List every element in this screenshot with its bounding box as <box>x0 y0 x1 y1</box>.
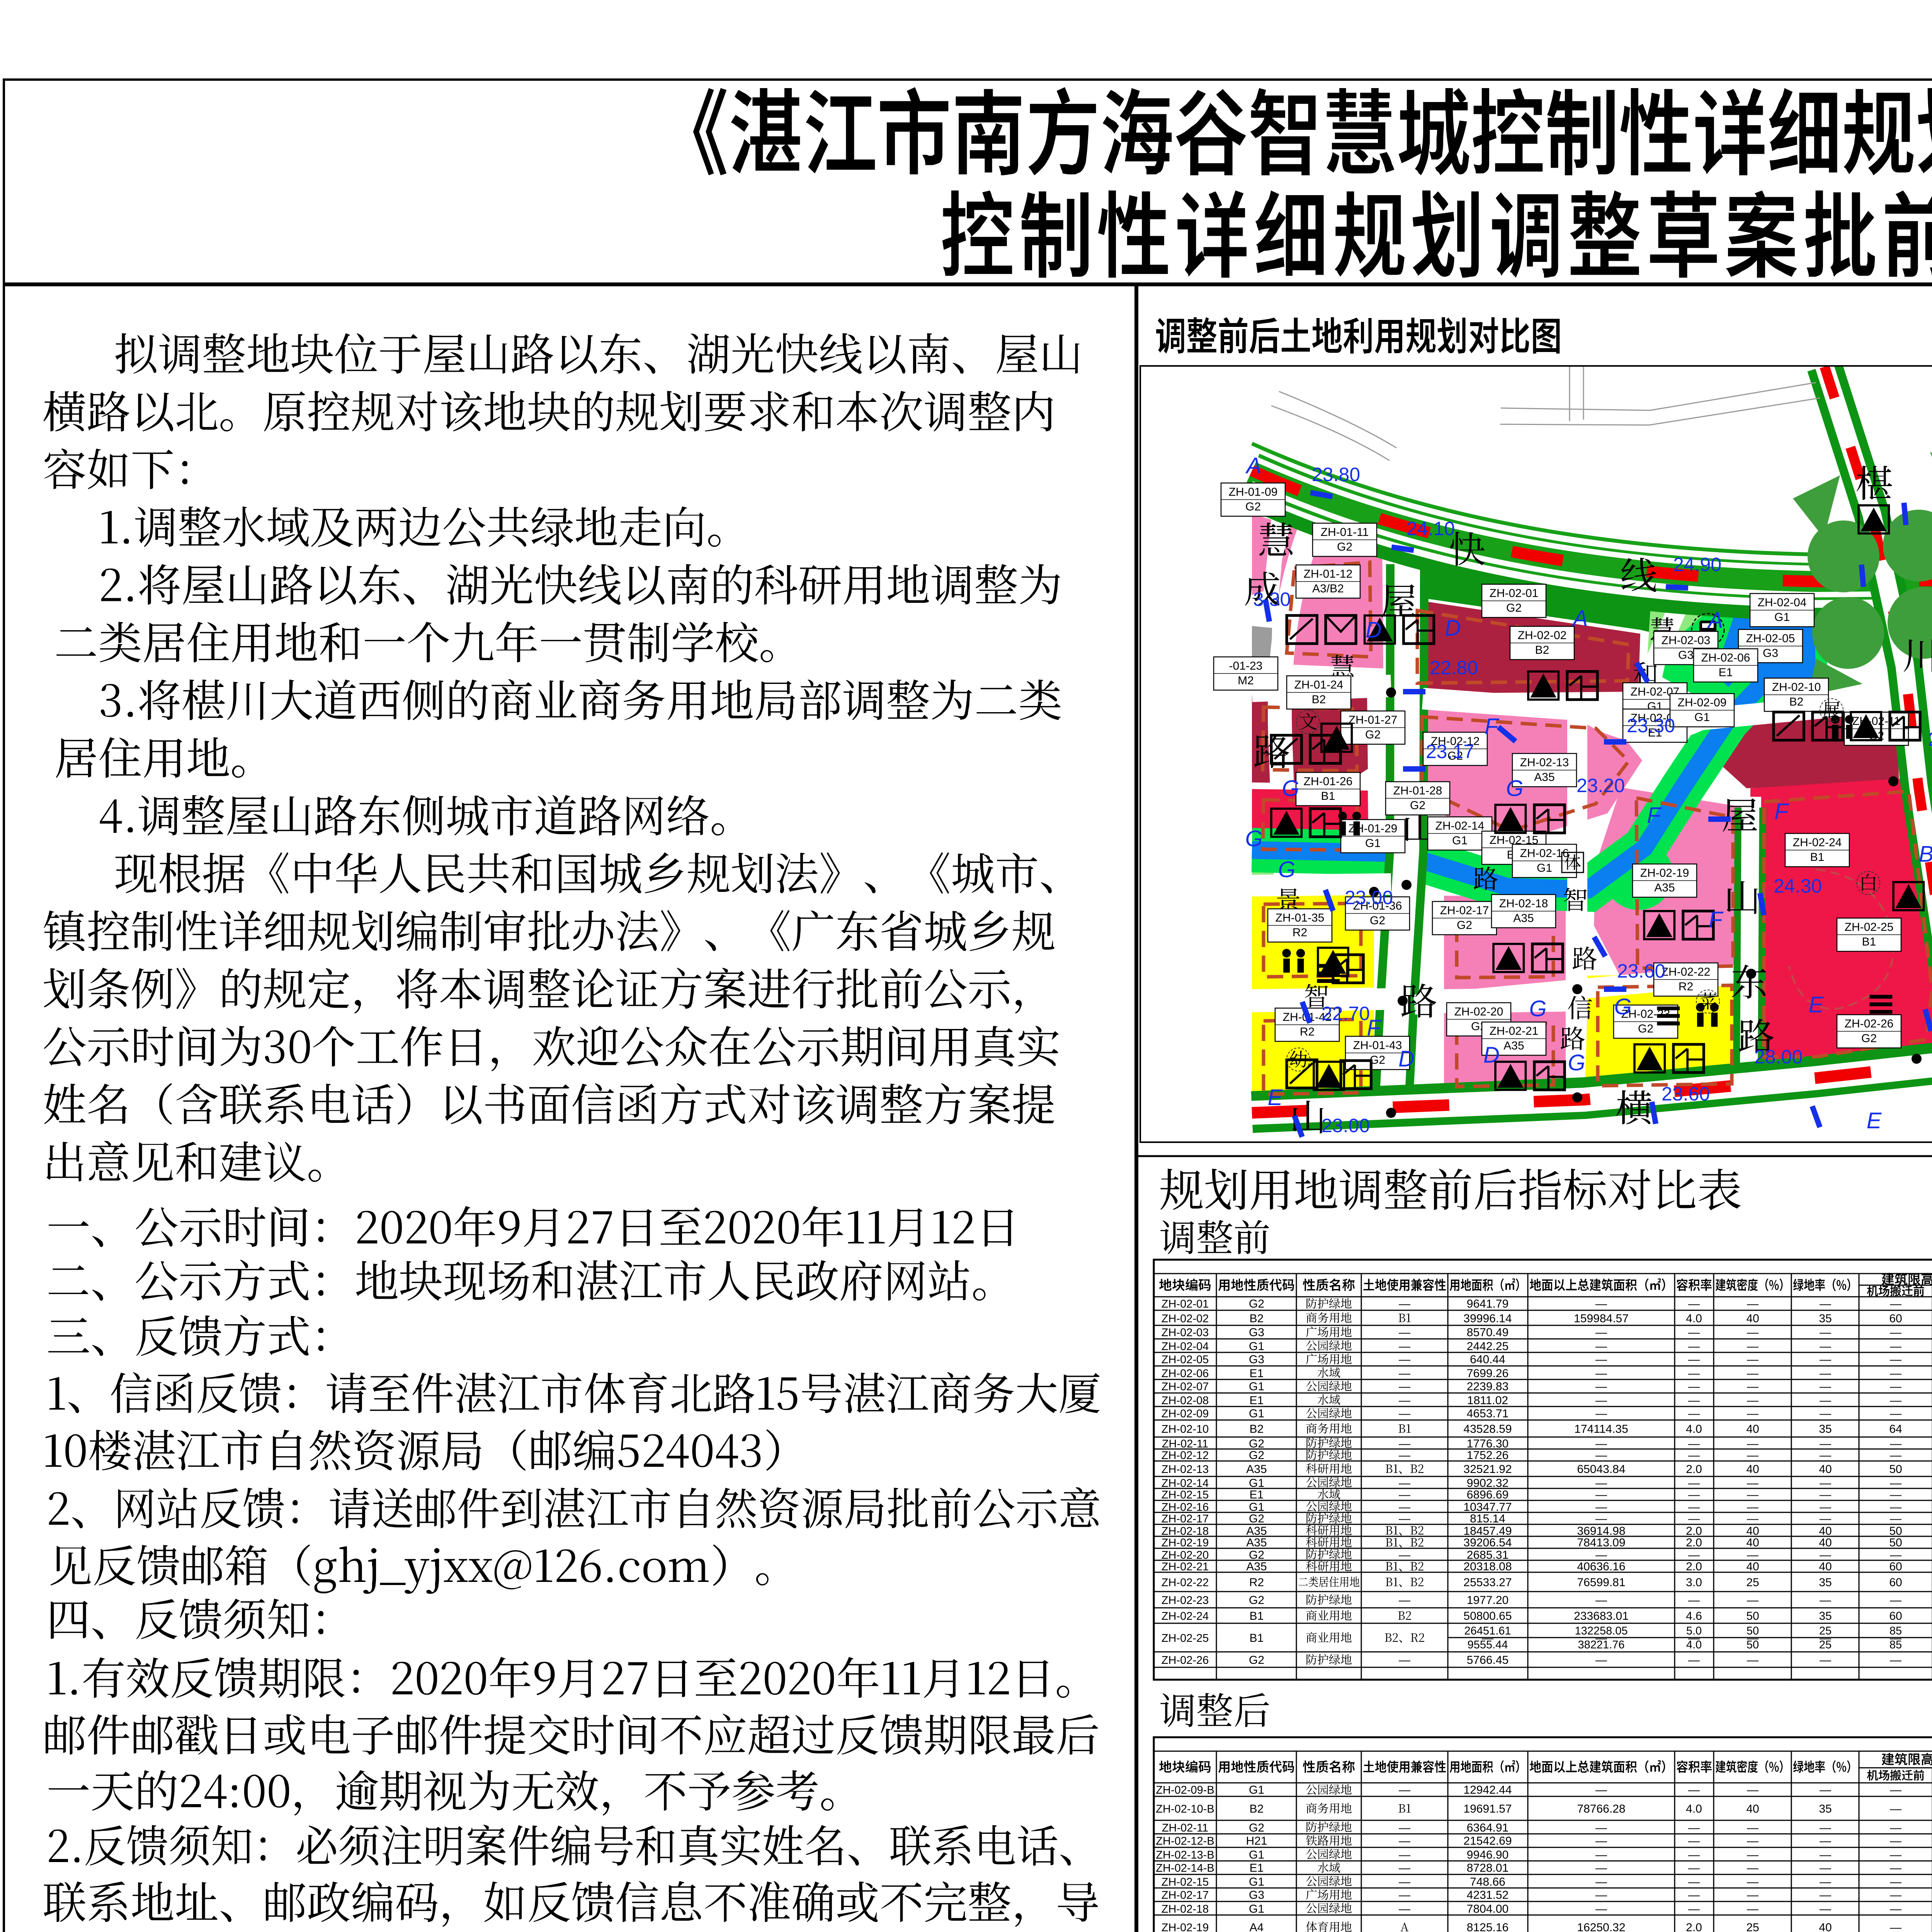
svg-text:ZH-02-17: ZH-02-17 <box>1162 1889 1209 1901</box>
svg-text:4231.52: 4231.52 <box>1467 1889 1509 1901</box>
svg-text:ZH-02-09-B: ZH-02-09-B <box>1156 1784 1214 1796</box>
svg-text:—: — <box>1747 1380 1759 1393</box>
svg-text:4.0: 4.0 <box>1686 1639 1702 1651</box>
svg-text:G: G <box>1278 857 1295 882</box>
svg-text:—: — <box>1595 1849 1607 1861</box>
svg-text:—: — <box>1688 1380 1700 1393</box>
svg-text:—: — <box>1890 1821 1901 1834</box>
svg-text:—: — <box>1399 1437 1410 1450</box>
svg-text:—: — <box>1688 1326 1700 1339</box>
svg-text:2685.31: 2685.31 <box>1467 1549 1509 1561</box>
svg-text:G3: G3 <box>1249 1889 1264 1901</box>
svg-text:23.17: 23.17 <box>1426 741 1474 762</box>
svg-text:21542.69: 21542.69 <box>1463 1835 1512 1847</box>
svg-text:—: — <box>1820 1512 1831 1525</box>
svg-text:G2: G2 <box>1249 1821 1264 1834</box>
svg-text:—: — <box>1595 1835 1607 1847</box>
svg-text:35: 35 <box>1819 1576 1832 1589</box>
svg-text:—: — <box>1688 1367 1700 1380</box>
svg-text:—: — <box>1820 1784 1831 1796</box>
svg-text:—: — <box>1688 1784 1700 1796</box>
svg-text:—: — <box>1688 1298 1700 1310</box>
svg-text:—: — <box>1890 1849 1901 1861</box>
svg-text:—: — <box>1890 1340 1901 1353</box>
svg-text:23.00: 23.00 <box>1345 887 1393 908</box>
svg-text:A35: A35 <box>1246 1560 1267 1573</box>
svg-text:ZH-02-03: ZH-02-03 <box>1662 634 1711 647</box>
svg-text:—: — <box>1688 1594 1700 1607</box>
svg-text:—: — <box>1595 1326 1607 1339</box>
svg-text:ZH-02-15: ZH-02-15 <box>1162 1489 1209 1501</box>
svg-text:—: — <box>1747 1876 1759 1888</box>
svg-text:7699.26: 7699.26 <box>1467 1367 1509 1380</box>
svg-text:39206.54: 39206.54 <box>1463 1536 1512 1549</box>
svg-text:24.30: 24.30 <box>1774 875 1822 897</box>
svg-text:38221.76: 38221.76 <box>1578 1639 1625 1651</box>
svg-text:B: B <box>1919 842 1932 867</box>
svg-text:40: 40 <box>1746 1312 1759 1325</box>
svg-text:ZH-02-22: ZH-02-22 <box>1662 966 1711 978</box>
svg-text:—: — <box>1399 1821 1410 1834</box>
svg-text:—: — <box>1595 1394 1607 1407</box>
svg-text:R2: R2 <box>1300 1026 1315 1038</box>
svg-text:65043.84: 65043.84 <box>1577 1463 1625 1476</box>
svg-text:—: — <box>1890 1654 1901 1667</box>
svg-text:ZH-02-03: ZH-02-03 <box>1162 1327 1209 1339</box>
svg-text:—: — <box>1399 1501 1410 1514</box>
svg-text:G2: G2 <box>1457 919 1472 932</box>
svg-text:—: — <box>1890 1407 1901 1420</box>
svg-text:—: — <box>1820 1340 1831 1353</box>
svg-text:E1: E1 <box>1250 1862 1264 1874</box>
svg-text:—: — <box>1890 1501 1901 1514</box>
svg-text:—: — <box>1595 1298 1607 1310</box>
svg-text:—: — <box>1747 1654 1759 1667</box>
svg-text:D: D <box>1483 1043 1500 1068</box>
svg-text:ZH-02-08: ZH-02-08 <box>1162 1395 1209 1407</box>
svg-text:23.30: 23.30 <box>1627 715 1675 736</box>
svg-text:—: — <box>1820 1903 1831 1915</box>
svg-text:39996.14: 39996.14 <box>1463 1312 1512 1325</box>
svg-text:H21: H21 <box>1246 1835 1267 1847</box>
svg-text:B2: B2 <box>1250 1312 1264 1325</box>
svg-text:—: — <box>1595 1353 1607 1366</box>
svg-text:G: G <box>1614 994 1631 1019</box>
svg-text:—: — <box>1688 1862 1700 1874</box>
svg-text:G2: G2 <box>1249 1298 1264 1310</box>
svg-text:—: — <box>1890 1437 1901 1450</box>
svg-text:—: — <box>1890 1594 1901 1607</box>
svg-text:ZH-02-16: ZH-02-16 <box>1162 1501 1209 1514</box>
svg-text:—: — <box>1890 1803 1901 1815</box>
svg-text:—: — <box>1747 1889 1759 1901</box>
svg-text:2239.83: 2239.83 <box>1467 1380 1509 1393</box>
svg-text:—: — <box>1399 1594 1410 1607</box>
svg-text:ZH-02-14-B: ZH-02-14-B <box>1156 1862 1214 1874</box>
svg-text:19691.57: 19691.57 <box>1463 1803 1512 1815</box>
svg-text:25: 25 <box>1746 1921 1759 1932</box>
svg-text:—: — <box>1890 1921 1901 1932</box>
svg-text:R2: R2 <box>1249 1576 1264 1589</box>
svg-text:40: 40 <box>1746 1560 1759 1573</box>
svg-text:85: 85 <box>1889 1625 1902 1637</box>
svg-text:16250.32: 16250.32 <box>1577 1921 1625 1932</box>
svg-text:159984.57: 159984.57 <box>1574 1312 1629 1325</box>
svg-text:—: — <box>1820 1654 1831 1667</box>
svg-text:—: — <box>1399 1903 1410 1915</box>
svg-text:G1: G1 <box>1249 1849 1264 1861</box>
svg-text:6364.91: 6364.91 <box>1467 1821 1509 1834</box>
svg-text:A35: A35 <box>1246 1536 1267 1549</box>
svg-text:ZH-02-21: ZH-02-21 <box>1162 1561 1209 1573</box>
svg-text:—: — <box>1820 1326 1831 1339</box>
svg-text:9946.90: 9946.90 <box>1467 1849 1509 1861</box>
svg-text:—: — <box>1688 1340 1700 1353</box>
svg-text:50: 50 <box>1747 1625 1759 1637</box>
svg-text:ZH-02-09: ZH-02-09 <box>1162 1408 1209 1420</box>
svg-text:2.0: 2.0 <box>1686 1921 1702 1932</box>
svg-text:10347.77: 10347.77 <box>1463 1501 1512 1514</box>
svg-text:G1: G1 <box>1249 1903 1264 1915</box>
svg-text:132258.05: 132258.05 <box>1575 1625 1628 1637</box>
svg-text:2.0: 2.0 <box>1686 1463 1702 1476</box>
svg-text:ZH-01-12: ZH-01-12 <box>1304 568 1353 580</box>
svg-text:—: — <box>1688 1903 1700 1915</box>
svg-text:4.0: 4.0 <box>1686 1312 1702 1325</box>
svg-text:—: — <box>1820 1876 1831 1888</box>
svg-text:ZH-02-13-B: ZH-02-13-B <box>1156 1849 1214 1861</box>
svg-text:ZH-01-27: ZH-01-27 <box>1349 714 1398 726</box>
svg-text:50: 50 <box>1747 1639 1759 1651</box>
svg-text:—: — <box>1399 1394 1410 1407</box>
svg-text:ZH-02-24: ZH-02-24 <box>1162 1610 1209 1622</box>
svg-text:9902.32: 9902.32 <box>1467 1477 1509 1490</box>
svg-text:ZH-02-05: ZH-02-05 <box>1746 632 1795 645</box>
svg-text:78766.28: 78766.28 <box>1577 1803 1625 1815</box>
svg-text:50: 50 <box>1889 1536 1902 1549</box>
svg-text:—: — <box>1820 1407 1831 1420</box>
svg-text:ZH-01-26: ZH-01-26 <box>1304 775 1353 788</box>
svg-text:G2: G2 <box>1337 541 1352 553</box>
svg-text:23.60: 23.60 <box>1617 960 1665 982</box>
svg-text:8728.01: 8728.01 <box>1467 1862 1509 1874</box>
svg-text:G: G <box>1245 826 1262 851</box>
svg-text:ZH-02-10-B: ZH-02-10-B <box>1156 1803 1214 1815</box>
svg-text:E1: E1 <box>1719 666 1733 679</box>
svg-text:40: 40 <box>1746 1536 1759 1549</box>
svg-text:—: — <box>1747 1821 1759 1834</box>
svg-text:—: — <box>1820 1353 1831 1366</box>
svg-text:1776.30: 1776.30 <box>1467 1437 1509 1450</box>
svg-text:—: — <box>1595 1488 1607 1501</box>
svg-text:ZH-02-18: ZH-02-18 <box>1162 1525 1209 1537</box>
svg-text:ZH-02-13: ZH-02-13 <box>1520 756 1569 769</box>
svg-text:—: — <box>1399 1326 1410 1339</box>
svg-text:40: 40 <box>1819 1560 1832 1573</box>
svg-text:A35: A35 <box>1513 912 1534 925</box>
svg-text:B1: B1 <box>1321 790 1335 803</box>
svg-text:1977.20: 1977.20 <box>1467 1594 1509 1607</box>
svg-text:—: — <box>1747 1353 1759 1366</box>
svg-text:—: — <box>1890 1298 1901 1310</box>
svg-text:ZH-02-14: ZH-02-14 <box>1162 1477 1209 1490</box>
svg-text:—: — <box>1820 1549 1831 1561</box>
svg-text:G: G <box>1506 776 1523 801</box>
svg-text:43528.59: 43528.59 <box>1463 1423 1512 1435</box>
svg-text:28.00: 28.00 <box>1754 1046 1803 1068</box>
svg-text:640.44: 640.44 <box>1470 1353 1505 1366</box>
svg-text:64: 64 <box>1889 1423 1902 1435</box>
svg-text:—: — <box>1399 1477 1410 1490</box>
svg-text:—: — <box>1399 1654 1410 1667</box>
svg-text:F: F <box>1367 1015 1382 1041</box>
svg-text:—: — <box>1890 1903 1901 1915</box>
svg-text:—: — <box>1820 1821 1831 1834</box>
svg-text:35: 35 <box>1819 1423 1832 1435</box>
svg-text:A: A <box>1245 453 1262 478</box>
svg-text:—: — <box>1595 1449 1607 1462</box>
svg-text:F: F <box>1774 799 1789 824</box>
svg-text:24.10: 24.10 <box>1406 518 1455 539</box>
svg-text:ZH-02-12-B: ZH-02-12-B <box>1156 1835 1214 1847</box>
svg-text:3.0: 3.0 <box>1686 1576 1702 1589</box>
svg-text:ZH-02-01: ZH-02-01 <box>1490 587 1539 600</box>
svg-text:40: 40 <box>1819 1525 1832 1537</box>
svg-text:—: — <box>1595 1477 1607 1490</box>
svg-text:B1: B1 <box>1250 1632 1264 1645</box>
svg-text:—: — <box>1399 1876 1410 1888</box>
svg-text:—: — <box>1820 1477 1831 1490</box>
svg-text:ZH-02-19: ZH-02-19 <box>1640 867 1689 879</box>
svg-text:G1: G1 <box>1249 1477 1264 1490</box>
svg-text:ZH-02-18: ZH-02-18 <box>1499 897 1548 910</box>
svg-text:60: 60 <box>1889 1610 1902 1622</box>
svg-text:78413.09: 78413.09 <box>1577 1536 1625 1549</box>
svg-text:ZH-02-21: ZH-02-21 <box>1490 1025 1539 1037</box>
svg-text:G2: G2 <box>1861 1032 1877 1045</box>
svg-text:—: — <box>1595 1367 1607 1380</box>
svg-text:—: — <box>1820 1380 1831 1393</box>
svg-text:—: — <box>1688 1449 1700 1462</box>
svg-text:—: — <box>1399 1449 1410 1462</box>
svg-text:—: — <box>1747 1298 1759 1310</box>
svg-text:—: — <box>1820 1449 1831 1462</box>
svg-text:E: E <box>1268 1085 1283 1110</box>
svg-text:—: — <box>1890 1784 1901 1796</box>
svg-text:6896.69: 6896.69 <box>1467 1488 1509 1501</box>
svg-text:ZH-02-25: ZH-02-25 <box>1845 921 1894 934</box>
svg-text:G3: G3 <box>1678 649 1694 662</box>
svg-text:—: — <box>1399 1298 1410 1310</box>
svg-text:—: — <box>1820 1835 1831 1847</box>
svg-text:4.6: 4.6 <box>1686 1610 1702 1622</box>
svg-text:—: — <box>1399 1380 1410 1393</box>
svg-text:—: — <box>1747 1340 1759 1353</box>
svg-text:23.80: 23.80 <box>1312 464 1360 485</box>
svg-text:B1: B1 <box>1250 1610 1264 1622</box>
svg-text:—: — <box>1688 1512 1700 1525</box>
svg-text:G1: G1 <box>1249 1340 1264 1353</box>
svg-text:1811.02: 1811.02 <box>1467 1394 1508 1407</box>
svg-text:E: E <box>1809 992 1824 1017</box>
svg-text:—: — <box>1595 1654 1607 1667</box>
svg-text:G1: G1 <box>1249 1380 1264 1393</box>
svg-text:—: — <box>1595 1380 1607 1393</box>
svg-text:G: G <box>1529 996 1546 1021</box>
svg-text:—: — <box>1747 1449 1759 1462</box>
svg-text:ZH-02-20: ZH-02-20 <box>1454 1005 1503 1018</box>
svg-text:—: — <box>1595 1784 1607 1796</box>
svg-text:B2: B2 <box>1250 1423 1264 1435</box>
svg-text:—: — <box>1820 1394 1831 1407</box>
svg-text:—: — <box>1820 1437 1831 1450</box>
svg-text:A: A <box>1572 606 1588 631</box>
svg-text:ZH-02-02: ZH-02-02 <box>1518 629 1567 642</box>
svg-text:—: — <box>1820 1594 1831 1607</box>
svg-text:G1: G1 <box>1452 834 1468 847</box>
svg-text:—: — <box>1747 1549 1759 1561</box>
svg-text:A35: A35 <box>1503 1039 1524 1052</box>
svg-text:A3/B2: A3/B2 <box>1312 582 1344 595</box>
svg-text:25533.27: 25533.27 <box>1463 1576 1512 1589</box>
svg-text:—: — <box>1688 1477 1700 1490</box>
svg-text:35: 35 <box>1819 1312 1832 1325</box>
svg-text:ZH-02-10: ZH-02-10 <box>1772 681 1821 694</box>
svg-text:ZH-01-24: ZH-01-24 <box>1294 679 1344 691</box>
svg-text:40: 40 <box>1746 1463 1759 1476</box>
svg-text:18457.49: 18457.49 <box>1463 1525 1512 1537</box>
svg-text:E1: E1 <box>1250 1488 1264 1501</box>
svg-text:—: — <box>1747 1477 1759 1490</box>
svg-text:—: — <box>1399 1488 1410 1501</box>
svg-text:—: — <box>1747 1394 1759 1407</box>
svg-text:9555.44: 9555.44 <box>1468 1639 1508 1651</box>
svg-text:1752.26: 1752.26 <box>1467 1449 1509 1462</box>
svg-text:23.20: 23.20 <box>1577 775 1625 796</box>
svg-text:85: 85 <box>1889 1639 1902 1651</box>
svg-text:—: — <box>1688 1549 1700 1561</box>
svg-text:—: — <box>1890 1394 1901 1407</box>
svg-text:—: — <box>1399 1889 1410 1901</box>
svg-text:—: — <box>1688 1835 1700 1847</box>
svg-text:—: — <box>1595 1437 1607 1450</box>
svg-text:B2: B2 <box>1535 644 1549 656</box>
svg-text:G2: G2 <box>1249 1512 1264 1525</box>
svg-text:G1: G1 <box>1249 1501 1264 1514</box>
svg-text:—: — <box>1688 1889 1700 1901</box>
svg-text:—: — <box>1820 1849 1831 1861</box>
svg-text:—: — <box>1595 1594 1607 1607</box>
svg-text:—: — <box>1595 1340 1607 1353</box>
svg-text:—: — <box>1890 1835 1901 1847</box>
svg-text:F: F <box>1485 714 1500 739</box>
svg-text:ZH-01-28: ZH-01-28 <box>1393 784 1442 797</box>
svg-text:ZH-01-35: ZH-01-35 <box>1276 912 1325 924</box>
svg-text:50: 50 <box>1746 1610 1759 1622</box>
svg-text:ZH-02-24: ZH-02-24 <box>1793 836 1842 849</box>
svg-text:ZH-02-19: ZH-02-19 <box>1162 1537 1209 1549</box>
svg-text:8125.16: 8125.16 <box>1467 1921 1509 1932</box>
svg-text:B2: B2 <box>1250 1803 1264 1815</box>
svg-text:—: — <box>1747 1835 1759 1847</box>
svg-text:ZH-02-25: ZH-02-25 <box>1162 1632 1209 1645</box>
svg-text:23.00: 23.00 <box>1321 1115 1370 1136</box>
svg-text:—: — <box>1820 1298 1831 1310</box>
svg-text:—: — <box>1747 1367 1759 1380</box>
svg-text:36914.98: 36914.98 <box>1577 1525 1625 1537</box>
svg-text:M2: M2 <box>1238 674 1254 687</box>
svg-text:A35: A35 <box>1654 881 1675 894</box>
svg-text:D: D <box>1366 617 1382 643</box>
svg-text:—: — <box>1595 1501 1607 1514</box>
svg-text:ZH-02-15: ZH-02-15 <box>1162 1876 1209 1888</box>
svg-text:A35: A35 <box>1534 771 1554 784</box>
svg-text:—: — <box>1399 1862 1410 1874</box>
svg-text:—: — <box>1747 1512 1759 1525</box>
svg-text:8570.49: 8570.49 <box>1467 1326 1509 1339</box>
svg-text:B2: B2 <box>1312 693 1326 706</box>
svg-text:ZH-02-01: ZH-02-01 <box>1162 1298 1209 1310</box>
svg-text:—: — <box>1747 1849 1759 1861</box>
svg-text:76599.81: 76599.81 <box>1577 1576 1625 1589</box>
svg-text:G3: G3 <box>1763 647 1778 660</box>
svg-text:—: — <box>1890 1876 1901 1888</box>
svg-text:G2: G2 <box>1249 1594 1264 1607</box>
svg-text:50: 50 <box>1889 1463 1902 1476</box>
svg-text:ZH-02-10: ZH-02-10 <box>1162 1423 1209 1435</box>
svg-text:G: G <box>1282 776 1299 801</box>
svg-text:2.0: 2.0 <box>1686 1525 1702 1537</box>
svg-text:ZH-02-19: ZH-02-19 <box>1162 1922 1209 1932</box>
svg-text:ZH-02-18: ZH-02-18 <box>1162 1903 1209 1915</box>
svg-text:—: — <box>1747 1407 1759 1420</box>
svg-text:2.0: 2.0 <box>1686 1536 1702 1549</box>
svg-text:—: — <box>1595 1407 1607 1420</box>
svg-text:ZH-02-14: ZH-02-14 <box>1435 820 1485 832</box>
svg-text:—: — <box>1595 1862 1607 1874</box>
svg-text:40: 40 <box>1819 1463 1832 1476</box>
svg-text:—: — <box>1890 1889 1901 1901</box>
svg-text:G3: G3 <box>1249 1353 1264 1366</box>
svg-text:25: 25 <box>1819 1625 1832 1637</box>
svg-text:—: — <box>1399 1340 1410 1353</box>
svg-text:32521.92: 32521.92 <box>1463 1463 1512 1476</box>
svg-text:—: — <box>1747 1437 1759 1450</box>
svg-text:35: 35 <box>1819 1610 1832 1622</box>
svg-text:—: — <box>1747 1488 1759 1501</box>
svg-text:ZH-01-43: ZH-01-43 <box>1353 1039 1402 1052</box>
svg-text:50: 50 <box>1889 1525 1902 1537</box>
svg-text:—: — <box>1820 1862 1831 1874</box>
svg-text:22.80: 22.80 <box>1430 657 1478 679</box>
svg-text:E1: E1 <box>1250 1394 1264 1407</box>
svg-text:22.70: 22.70 <box>1321 1003 1370 1024</box>
svg-text:—: — <box>1688 1849 1700 1861</box>
svg-text:ZH-02-04: ZH-02-04 <box>1162 1340 1209 1353</box>
svg-text:G2: G2 <box>1370 914 1385 927</box>
svg-text:G2: G2 <box>1638 1022 1653 1035</box>
svg-text:—: — <box>1890 1367 1901 1380</box>
svg-text:25: 25 <box>1746 1576 1759 1589</box>
svg-text:—: — <box>1820 1501 1831 1514</box>
svg-text:G1: G1 <box>1774 611 1790 624</box>
svg-text:233683.01: 233683.01 <box>1574 1610 1629 1622</box>
svg-text:ZH-02-20: ZH-02-20 <box>1162 1549 1209 1561</box>
svg-text:ZH-02-22: ZH-02-22 <box>1162 1577 1209 1589</box>
svg-text:—: — <box>1820 1367 1831 1380</box>
svg-text:ZH-01-09: ZH-01-09 <box>1229 486 1278 498</box>
svg-text:12942.44: 12942.44 <box>1463 1784 1512 1796</box>
